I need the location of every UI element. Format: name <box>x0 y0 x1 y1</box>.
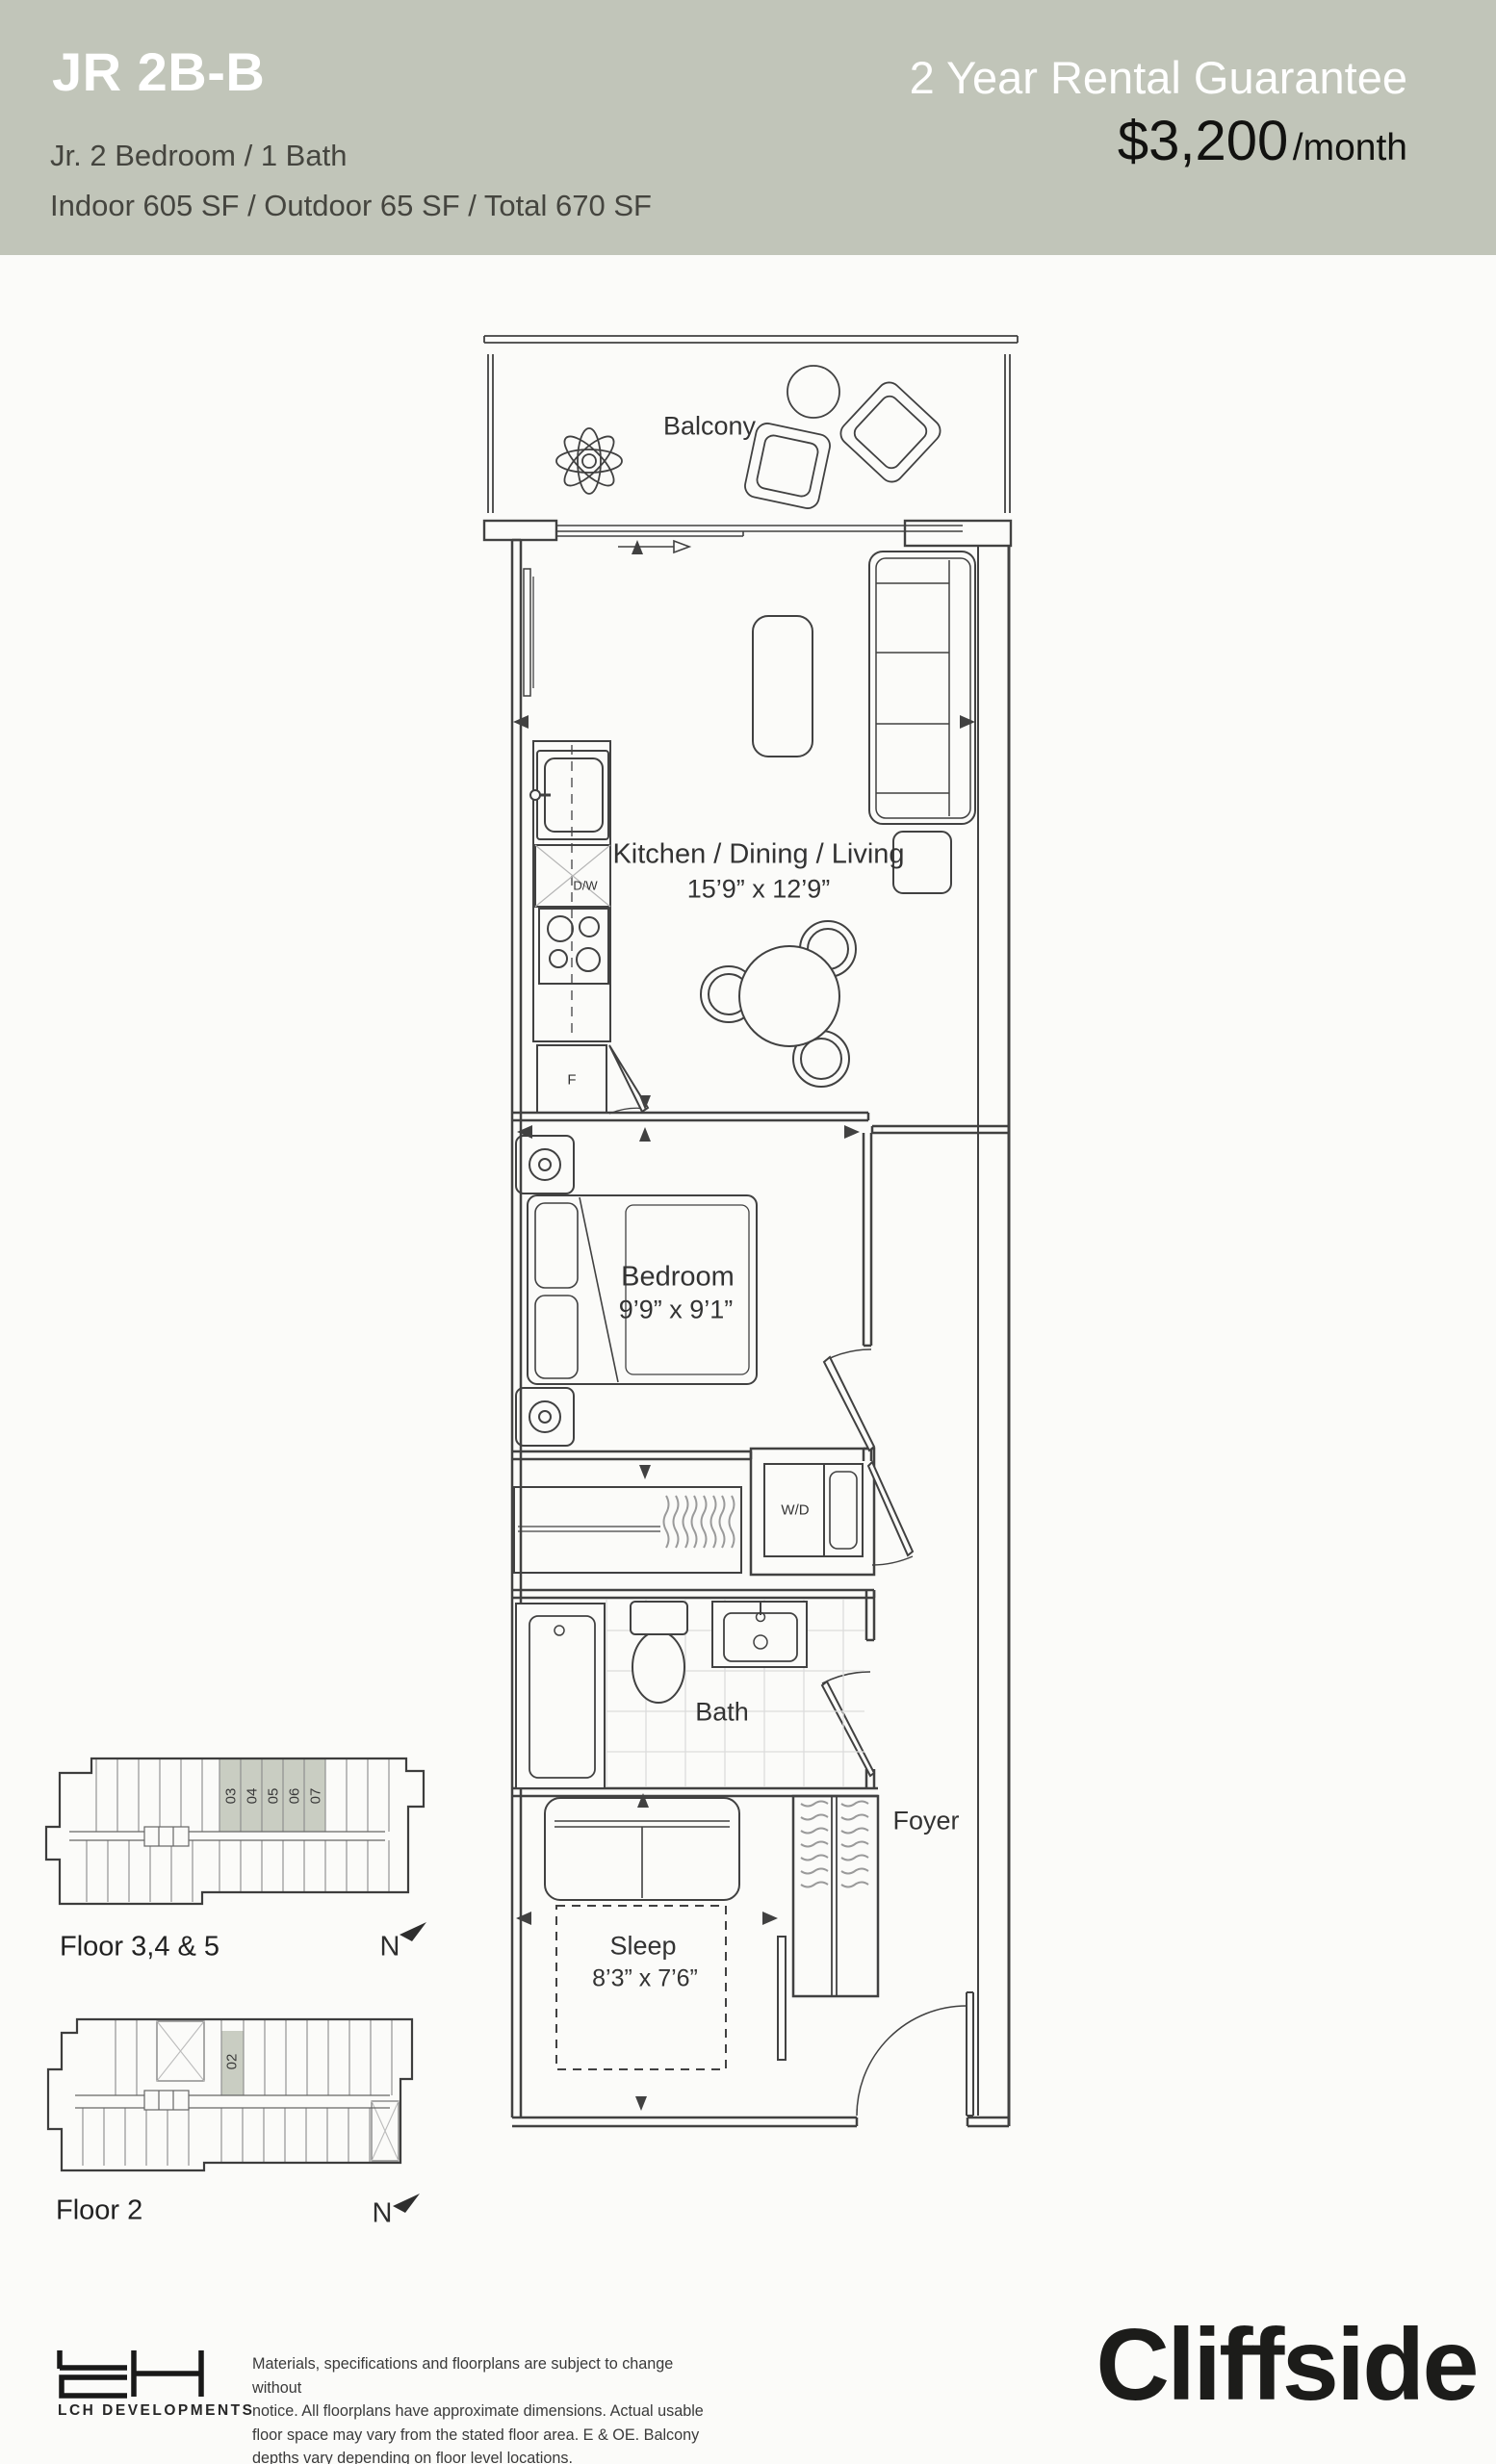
floorplan-drawing <box>0 0 1496 2464</box>
unit-number-04: 04 <box>245 1788 261 1805</box>
balcony-chair <box>836 377 944 486</box>
north-label: N <box>380 1932 400 1963</box>
plant-icon <box>556 428 622 494</box>
sofa-bed-icon <box>545 1798 739 1900</box>
keyplan-floor345 <box>46 1758 426 1941</box>
disclaimer-line: Materials, specifications and floorplans… <box>252 2352 714 2400</box>
bathroom-sink-icon <box>712 1602 807 1667</box>
foyer-label: Foyer <box>892 1807 959 1836</box>
unit-number-06: 06 <box>287 1788 303 1805</box>
dining-set <box>701 921 856 1087</box>
bath-fixtures <box>516 1600 864 1788</box>
keyplan-floor345-label: Floor 3,4 & 5 <box>60 1932 219 1963</box>
stove-icon <box>539 909 608 984</box>
unit-number-05: 05 <box>266 1788 282 1805</box>
unit-number-07: 07 <box>308 1788 324 1805</box>
lch-logo-icon <box>60 2350 201 2397</box>
foyer-closet-hangers <box>801 1802 868 1887</box>
north-label: N <box>373 2198 393 2230</box>
balcony-chair <box>743 422 833 511</box>
bath-label: Bath <box>695 1698 749 1728</box>
bedroom-label: Bedroom <box>621 1262 735 1294</box>
disclaimer: Materials, specifications and floorplans… <box>252 2352 714 2464</box>
sleep-dims: 8’3” x 7’6” <box>592 1965 698 1993</box>
north-arrow-icon <box>400 1922 426 1941</box>
balcony-label: Balcony <box>663 412 756 442</box>
fridge-label: F <box>567 1072 576 1089</box>
walls <box>512 540 1009 2126</box>
coffee-table <box>753 616 812 757</box>
keyplan-floor2 <box>48 2019 420 2213</box>
dishwasher-icon <box>535 845 610 907</box>
nightstand-icon <box>516 1136 574 1193</box>
washer-dryer-label: W/D <box>781 1502 809 1519</box>
sofa-icon <box>869 552 975 824</box>
disclaimer-line: depths vary depending on floor level loc… <box>252 2447 714 2464</box>
kitchen-label: Kitchen / Dining / Living <box>612 839 904 871</box>
bedroom-dims: 9’9” x 9’1” <box>619 1296 734 1325</box>
developer-name: LCH DEVELOPMENTS <box>58 2402 254 2420</box>
disclaimer-line: notice. All floorplans have approximate … <box>252 2400 714 2424</box>
bathtub-icon <box>516 1604 605 1788</box>
dimension-arrows <box>513 540 975 2111</box>
sleep-area <box>545 1798 868 2069</box>
disclaimer-line: floor space may vary from the stated flo… <box>252 2424 714 2448</box>
floorplan-page: JR 2B-B Jr. 2 Bedroom / 1 Bath Indoor 60… <box>0 0 1496 2464</box>
brand-logo: Cliffside <box>1096 2314 1477 2416</box>
living-furniture <box>701 552 975 1087</box>
bedroom-furniture <box>514 1136 863 1573</box>
unit-number-03: 03 <box>223 1788 240 1805</box>
sleep-label: Sleep <box>609 1932 676 1962</box>
unit-number-02: 02 <box>224 2054 241 2070</box>
balcony-table <box>787 366 839 418</box>
closet-icon <box>514 1487 741 1573</box>
north-arrow-icon <box>393 2194 420 2213</box>
kitchen-dims: 15’9” x 12’9” <box>687 875 831 905</box>
keyplan-floor2-label: Floor 2 <box>56 2195 142 2227</box>
sink-icon <box>530 751 608 839</box>
washer-dryer-icon <box>764 1464 863 1556</box>
nightstand-icon <box>516 1388 574 1446</box>
dishwasher-label: D/W <box>573 879 597 893</box>
kitchen-fixtures <box>524 569 610 1113</box>
balcony-sliding-door <box>484 521 1011 552</box>
tv-icon <box>524 569 530 696</box>
toilet-icon <box>631 1602 687 1703</box>
